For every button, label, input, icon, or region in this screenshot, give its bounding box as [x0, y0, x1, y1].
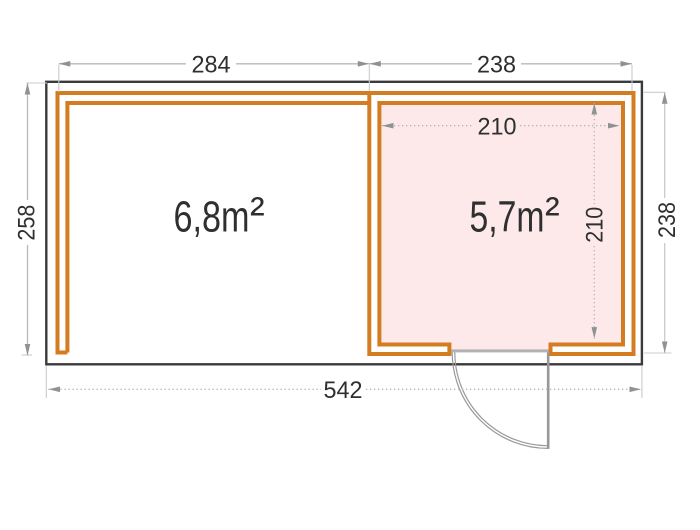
svg-text:238: 238 [477, 52, 516, 79]
svg-text:258: 258 [14, 205, 41, 241]
svg-text:210: 210 [582, 207, 609, 243]
svg-text:238: 238 [654, 202, 681, 238]
svg-text:²: ² [545, 189, 560, 238]
svg-text:542: 542 [324, 377, 363, 404]
svg-text:²: ² [250, 189, 265, 238]
svg-text:284: 284 [192, 52, 231, 79]
svg-text:210: 210 [478, 113, 517, 140]
svg-text:5,7m: 5,7m [470, 193, 545, 242]
svg-text:6,8m: 6,8m [174, 193, 250, 242]
